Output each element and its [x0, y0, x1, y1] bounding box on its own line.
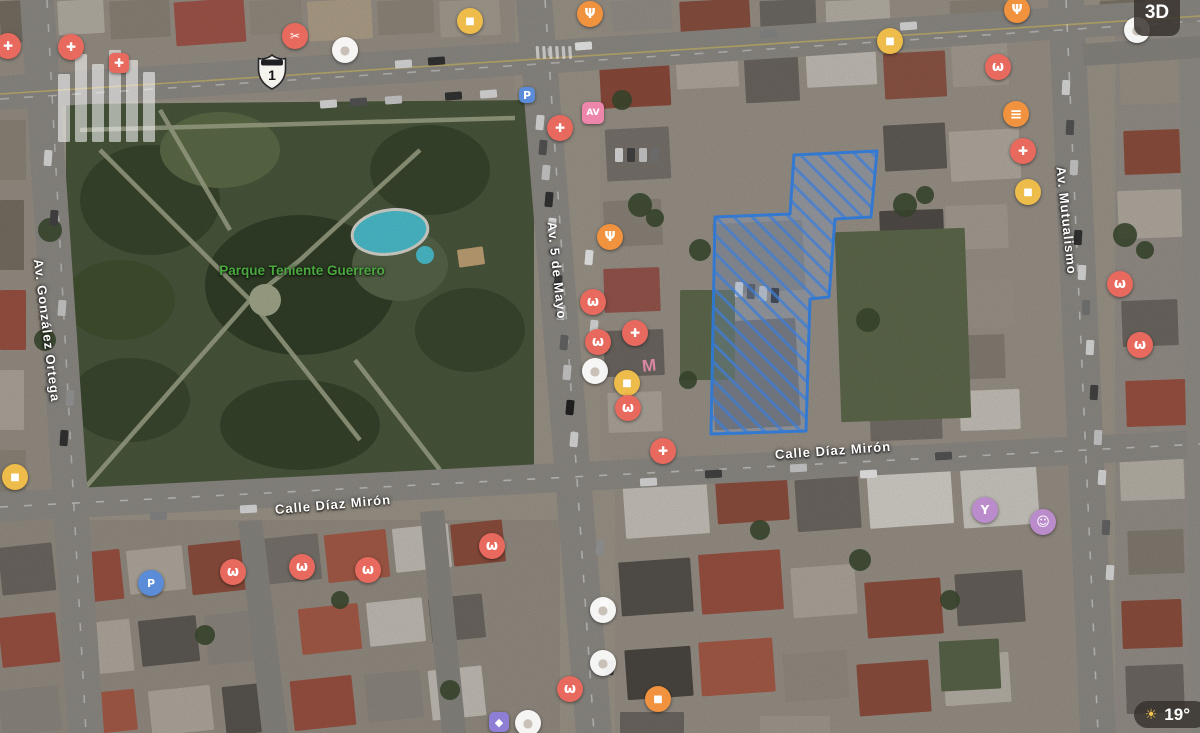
- medical-icon: ✚: [630, 326, 640, 340]
- poi-generic-marker[interactable]: ●: [590, 597, 616, 623]
- 3d-mode-button[interactable]: 3D: [1134, 0, 1180, 36]
- poi-gas-marker[interactable]: P: [138, 570, 164, 596]
- salon-icon: ✂: [290, 29, 300, 43]
- generic-icon: ●: [598, 603, 608, 617]
- map-canvas[interactable]: M 1 Parque Teniente Guerrero 3D ☀ 19° Av…: [0, 0, 1200, 733]
- poi-dentist-marker[interactable]: ω: [1127, 332, 1153, 358]
- medical-icon: ✚: [66, 40, 76, 54]
- watermark-bar: [75, 54, 87, 142]
- weather-widget[interactable]: ☀ 19°: [1134, 701, 1200, 728]
- poi-theater-marker[interactable]: ☺: [1030, 509, 1056, 535]
- dentist-icon: ω: [992, 59, 1004, 75]
- poi-dentist-marker[interactable]: ω: [615, 395, 641, 421]
- temperature-label: 19°: [1164, 705, 1190, 725]
- park-label[interactable]: Parque Teniente Guerrero: [217, 262, 387, 280]
- food-icon: ≡: [1010, 105, 1023, 123]
- poi-dentist-marker[interactable]: ω: [289, 554, 315, 580]
- poi-dentist-marker[interactable]: ω: [985, 54, 1011, 80]
- poi-food-marker[interactable]: ≡: [1003, 101, 1029, 127]
- generic-icon: ●: [590, 364, 600, 378]
- restaurant-icon: Ψ: [604, 230, 615, 245]
- services-icon: ◆: [495, 716, 503, 729]
- poi-hospital-marker[interactable]: ✚: [109, 53, 129, 73]
- poi-medical-marker[interactable]: ✚: [547, 115, 573, 141]
- medical-icon: ✚: [3, 39, 13, 53]
- poi-restaurant-marker[interactable]: Ψ: [597, 224, 623, 250]
- generic-icon: ●: [523, 716, 533, 730]
- parking-icon: P: [523, 89, 531, 102]
- generic-icon: ●: [340, 43, 350, 57]
- route-number: 1: [257, 67, 287, 83]
- poi-shopping-marker[interactable]: ■: [2, 464, 28, 490]
- dentist-icon: ω: [362, 562, 374, 578]
- poi-dentist-marker[interactable]: ω: [220, 559, 246, 585]
- dentist-icon: ω: [227, 564, 239, 580]
- poi-shopping-marker[interactable]: ■: [645, 686, 671, 712]
- rooftop-sign-text: M: [641, 355, 659, 377]
- dentist-icon: ω: [592, 334, 604, 350]
- watermark-bar: [58, 74, 70, 142]
- poi-parking-marker[interactable]: P: [519, 87, 535, 103]
- medical-icon: ✚: [1018, 144, 1028, 158]
- poi-dentist-marker[interactable]: ω: [585, 329, 611, 355]
- generic-icon: ●: [598, 656, 608, 670]
- poi-shopping-marker[interactable]: ■: [1015, 179, 1041, 205]
- dentist-icon: ω: [296, 559, 308, 575]
- store-icon: AV: [586, 108, 599, 118]
- poi-dentist-marker[interactable]: ω: [355, 557, 381, 583]
- shopping-icon: ■: [653, 694, 662, 705]
- shopping-icon: ■: [10, 472, 19, 483]
- poi-restaurant-marker[interactable]: Ψ: [577, 1, 603, 27]
- poi-medical-marker[interactable]: ✚: [650, 438, 676, 464]
- poi-generic-marker[interactable]: ●: [590, 650, 616, 676]
- dentist-icon: ω: [564, 681, 576, 697]
- restaurant-icon: Ψ: [584, 7, 595, 22]
- shopping-icon: ■: [465, 16, 474, 27]
- medical-icon: ✚: [555, 121, 565, 135]
- route-1-shield: 1: [257, 54, 287, 90]
- dentist-icon: ω: [1114, 276, 1126, 292]
- watermark-bar: [126, 60, 138, 142]
- poi-services-marker[interactable]: ◆: [489, 712, 509, 732]
- trophy-icon: Y: [981, 503, 990, 517]
- sun-icon: ☀: [1145, 707, 1158, 723]
- theater-icon: ☺: [1036, 515, 1050, 530]
- shopping-icon: ■: [885, 36, 894, 47]
- medical-icon: ✚: [658, 444, 668, 458]
- poi-dentist-marker[interactable]: ω: [580, 289, 606, 315]
- dentist-icon: ω: [1134, 337, 1146, 353]
- shopping-icon: ■: [1023, 187, 1032, 198]
- poi-dentist-marker[interactable]: ω: [479, 533, 505, 559]
- poi-shopping-marker[interactable]: ■: [877, 28, 903, 54]
- poi-shopping-marker[interactable]: ■: [457, 8, 483, 34]
- poi-salon-marker[interactable]: ✂: [282, 23, 308, 49]
- poi-dentist-marker[interactable]: ω: [557, 676, 583, 702]
- poi-trophy-marker[interactable]: Y: [972, 497, 998, 523]
- poi-medical-marker[interactable]: ✚: [58, 34, 84, 60]
- gas-icon: P: [147, 577, 155, 590]
- watermark-bar: [92, 64, 104, 142]
- poi-generic-marker[interactable]: ●: [582, 358, 608, 384]
- restaurant-icon: Ψ: [1011, 3, 1022, 18]
- poi-shopping-marker[interactable]: ■: [614, 370, 640, 396]
- poi-store-marker[interactable]: AV: [582, 102, 604, 124]
- poi-dentist-marker[interactable]: ω: [1107, 271, 1133, 297]
- poi-generic-marker[interactable]: ●: [332, 37, 358, 63]
- shopping-icon: ■: [622, 378, 631, 389]
- watermark-bar: [143, 72, 155, 142]
- poi-generic-marker[interactable]: ●: [515, 710, 541, 733]
- poi-medical-marker[interactable]: ✚: [1010, 138, 1036, 164]
- hospital-icon: ✚: [114, 56, 124, 70]
- dentist-icon: ω: [587, 294, 599, 310]
- dentist-icon: ω: [622, 400, 634, 416]
- dentist-icon: ω: [486, 538, 498, 554]
- poi-medical-marker[interactable]: ✚: [622, 320, 648, 346]
